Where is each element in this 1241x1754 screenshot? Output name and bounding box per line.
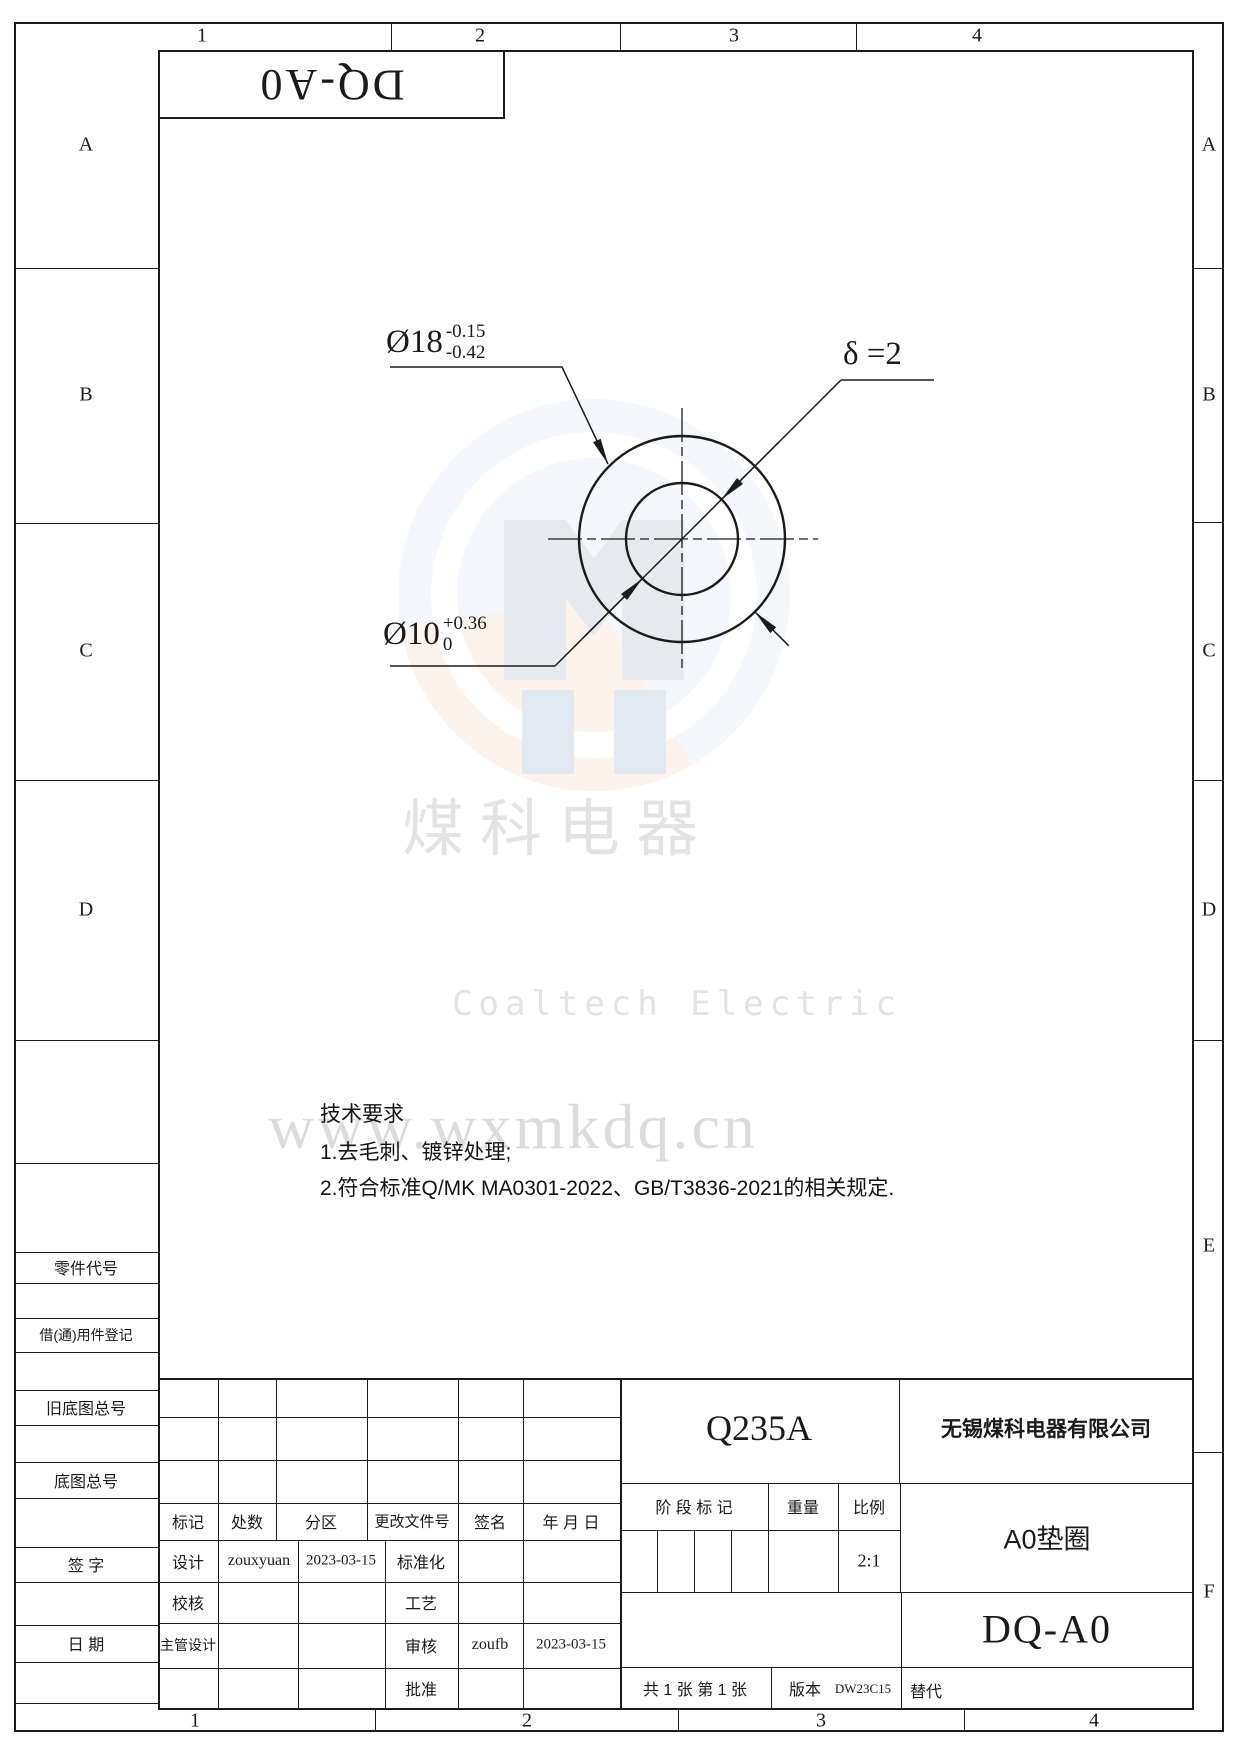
zone-letter-left: C (79, 640, 92, 663)
titleblock-line (158, 1460, 620, 1461)
titleblock-line (620, 1378, 622, 1710)
rev-header-zone: 分区 (305, 1509, 337, 1533)
zone-number-top: 2 (475, 25, 485, 48)
stage-mark-label: 阶 段 标 记 (655, 1494, 732, 1518)
tech-requirements-line1: 1.去毛刺、镀锌处理; (320, 1136, 511, 1166)
audit-name: zoufb (472, 1636, 508, 1654)
titleblock-line (158, 1417, 620, 1418)
zone-number-top: 3 (729, 25, 739, 48)
zone-letter-right: A (1202, 134, 1216, 157)
titleblock-line (158, 1582, 620, 1583)
zone-letter-left: B (79, 384, 92, 407)
titleblock-line (899, 1378, 900, 1483)
margin-divider (1194, 780, 1224, 781)
titleblock-line (367, 1378, 368, 1540)
margin-divider (14, 1252, 158, 1253)
titleblock-line (620, 1530, 900, 1531)
margin-label-date: 日 期 (68, 1631, 104, 1655)
titleblock-line (158, 1503, 620, 1504)
margin-divider (1194, 522, 1224, 523)
rev-header-mark: 标记 (172, 1509, 204, 1533)
titleblock-line (731, 1530, 732, 1592)
rev-header-count: 处数 (231, 1509, 263, 1533)
zone-tick (856, 22, 857, 50)
scale-value: 2:1 (857, 1551, 880, 1572)
titleblock-line (620, 1592, 1194, 1593)
titleblock-line (838, 1483, 839, 1592)
margin-divider (1194, 1040, 1224, 1041)
tolerance-lower: -0.42 (446, 343, 486, 364)
margin-divider (14, 1498, 158, 1499)
titleblock-line (620, 1667, 1194, 1668)
version-label: 版本 (789, 1676, 821, 1700)
dimension-value: Ø10 (383, 616, 440, 653)
margin-label-sign: 签 字 (68, 1552, 104, 1576)
company-name: 无锡煤科电器有限公司 (941, 1413, 1151, 1443)
margin-divider (14, 1547, 158, 1548)
inner-frame (158, 50, 1194, 1710)
margin-label-borrow: 借(通)用件登记 (39, 1325, 132, 1345)
margin-divider (14, 1318, 158, 1319)
tolerance-upper: +0.36 (443, 614, 487, 635)
margin-divider (14, 1425, 158, 1426)
zone-number-top: 1 (197, 25, 207, 48)
dimension-outer-diameter: Ø18 -0.15-0.42 (386, 322, 485, 363)
margin-divider (14, 1703, 158, 1704)
zone-letter-right: E (1203, 1235, 1215, 1258)
margin-divider (14, 268, 158, 269)
audit-label: 审核 (405, 1633, 437, 1657)
titleblock-line (771, 1667, 772, 1710)
process-label: 工艺 (405, 1590, 437, 1614)
margin-label-part-code: 零件代号 (54, 1255, 118, 1279)
titleblock-line (523, 1378, 524, 1710)
titleblock-line (901, 1592, 902, 1710)
design-label: 设计 (172, 1549, 204, 1573)
margin-divider (14, 1390, 158, 1391)
replace-label: 替代 (910, 1678, 942, 1702)
zone-letter-right: F (1203, 1581, 1214, 1604)
zone-letter-left: D (79, 899, 93, 922)
margin-divider (14, 523, 158, 524)
titleblock-line (657, 1530, 658, 1592)
titleblock-line (768, 1483, 769, 1592)
material-grade: Q235A (706, 1407, 812, 1449)
zone-tick (620, 22, 621, 50)
chief-design-label: 主管设计 (160, 1635, 216, 1655)
approve-label: 批准 (405, 1676, 437, 1700)
zone-letter-right: D (1202, 899, 1216, 922)
margin-divider (14, 1163, 158, 1164)
dimension-thickness: δ =2 (843, 336, 902, 373)
margin-divider (14, 1582, 158, 1583)
tech-requirements-title: 技术要求 (320, 1098, 404, 1128)
margin-label-old-master: 旧底图总号 (46, 1395, 126, 1419)
weight-label: 重量 (787, 1494, 819, 1518)
zone-number-bottom: 3 (816, 1710, 826, 1733)
zone-tick (391, 22, 392, 50)
dimension-inner-diameter: Ø10 +0.360 (383, 614, 487, 655)
rev-header-date: 年 月 日 (543, 1509, 600, 1533)
part-name: A0垫圈 (1003, 1518, 1090, 1557)
margin-divider (1194, 1452, 1224, 1453)
margin-label-master: 底图总号 (54, 1468, 118, 1492)
titleblock-line (458, 1378, 459, 1710)
version-value: DW23C15 (835, 1681, 891, 1697)
dimension-value: δ =2 (843, 336, 902, 373)
scale-label: 比例 (853, 1494, 885, 1518)
zone-number-top: 4 (972, 25, 982, 48)
tolerance-lower: 0 (443, 635, 487, 656)
titleblock-line (694, 1530, 695, 1592)
standardization-label: 标准化 (397, 1549, 445, 1573)
titleblock-line (158, 1668, 620, 1669)
titleblock-line (620, 1483, 1194, 1484)
titleblock-line (276, 1378, 277, 1540)
zone-tick (375, 1710, 376, 1732)
zone-number-bottom: 2 (522, 1710, 532, 1733)
zone-letter-left: A (79, 134, 93, 157)
margin-divider (14, 1462, 158, 1463)
margin-divider (14, 780, 158, 781)
tech-requirements-line2: 2.符合标准Q/MK MA0301-2022、GB/T3836-2021的相关规… (320, 1172, 894, 1202)
titleblock-line (158, 1623, 620, 1624)
part-number: DQ-A0 (982, 1606, 1112, 1653)
sheet-count: 共 1 张 第 1 张 (643, 1676, 747, 1700)
stamp-part-number: DQ-A0 (258, 60, 405, 111)
titleblock-line (218, 1378, 219, 1710)
check-label: 校核 (172, 1590, 204, 1614)
margin-divider (14, 1625, 158, 1626)
design-date: 2023-03-15 (306, 1553, 376, 1570)
zone-number-bottom: 4 (1089, 1710, 1099, 1733)
audit-date: 2023-03-15 (536, 1637, 606, 1654)
zone-tick (964, 1710, 965, 1732)
margin-divider (14, 1352, 158, 1353)
titleblock-line (158, 1378, 1194, 1380)
zone-tick (678, 1710, 679, 1732)
titleblock-line (158, 1540, 620, 1541)
rev-header-sig: 签名 (474, 1509, 506, 1533)
zone-letter-right: C (1202, 640, 1215, 663)
titleblock-line (900, 1483, 901, 1592)
margin-divider (14, 1662, 158, 1663)
titleblock-line (298, 1540, 299, 1710)
dimension-value: Ø18 (386, 324, 443, 361)
zone-number-bottom: 1 (190, 1710, 200, 1733)
margin-divider (14, 1283, 158, 1284)
margin-divider (14, 1040, 158, 1041)
design-name: zouxyuan (228, 1552, 290, 1570)
rev-header-doc: 更改文件号 (374, 1511, 449, 1532)
tolerance-upper: -0.15 (446, 322, 486, 343)
titleblock-line (385, 1540, 386, 1710)
drawing-sheet: 煤科电器 Coaltech Electric www.wxmkdq.cn DQ-… (0, 0, 1241, 1754)
margin-divider (1194, 268, 1224, 269)
zone-letter-right: B (1202, 384, 1215, 407)
